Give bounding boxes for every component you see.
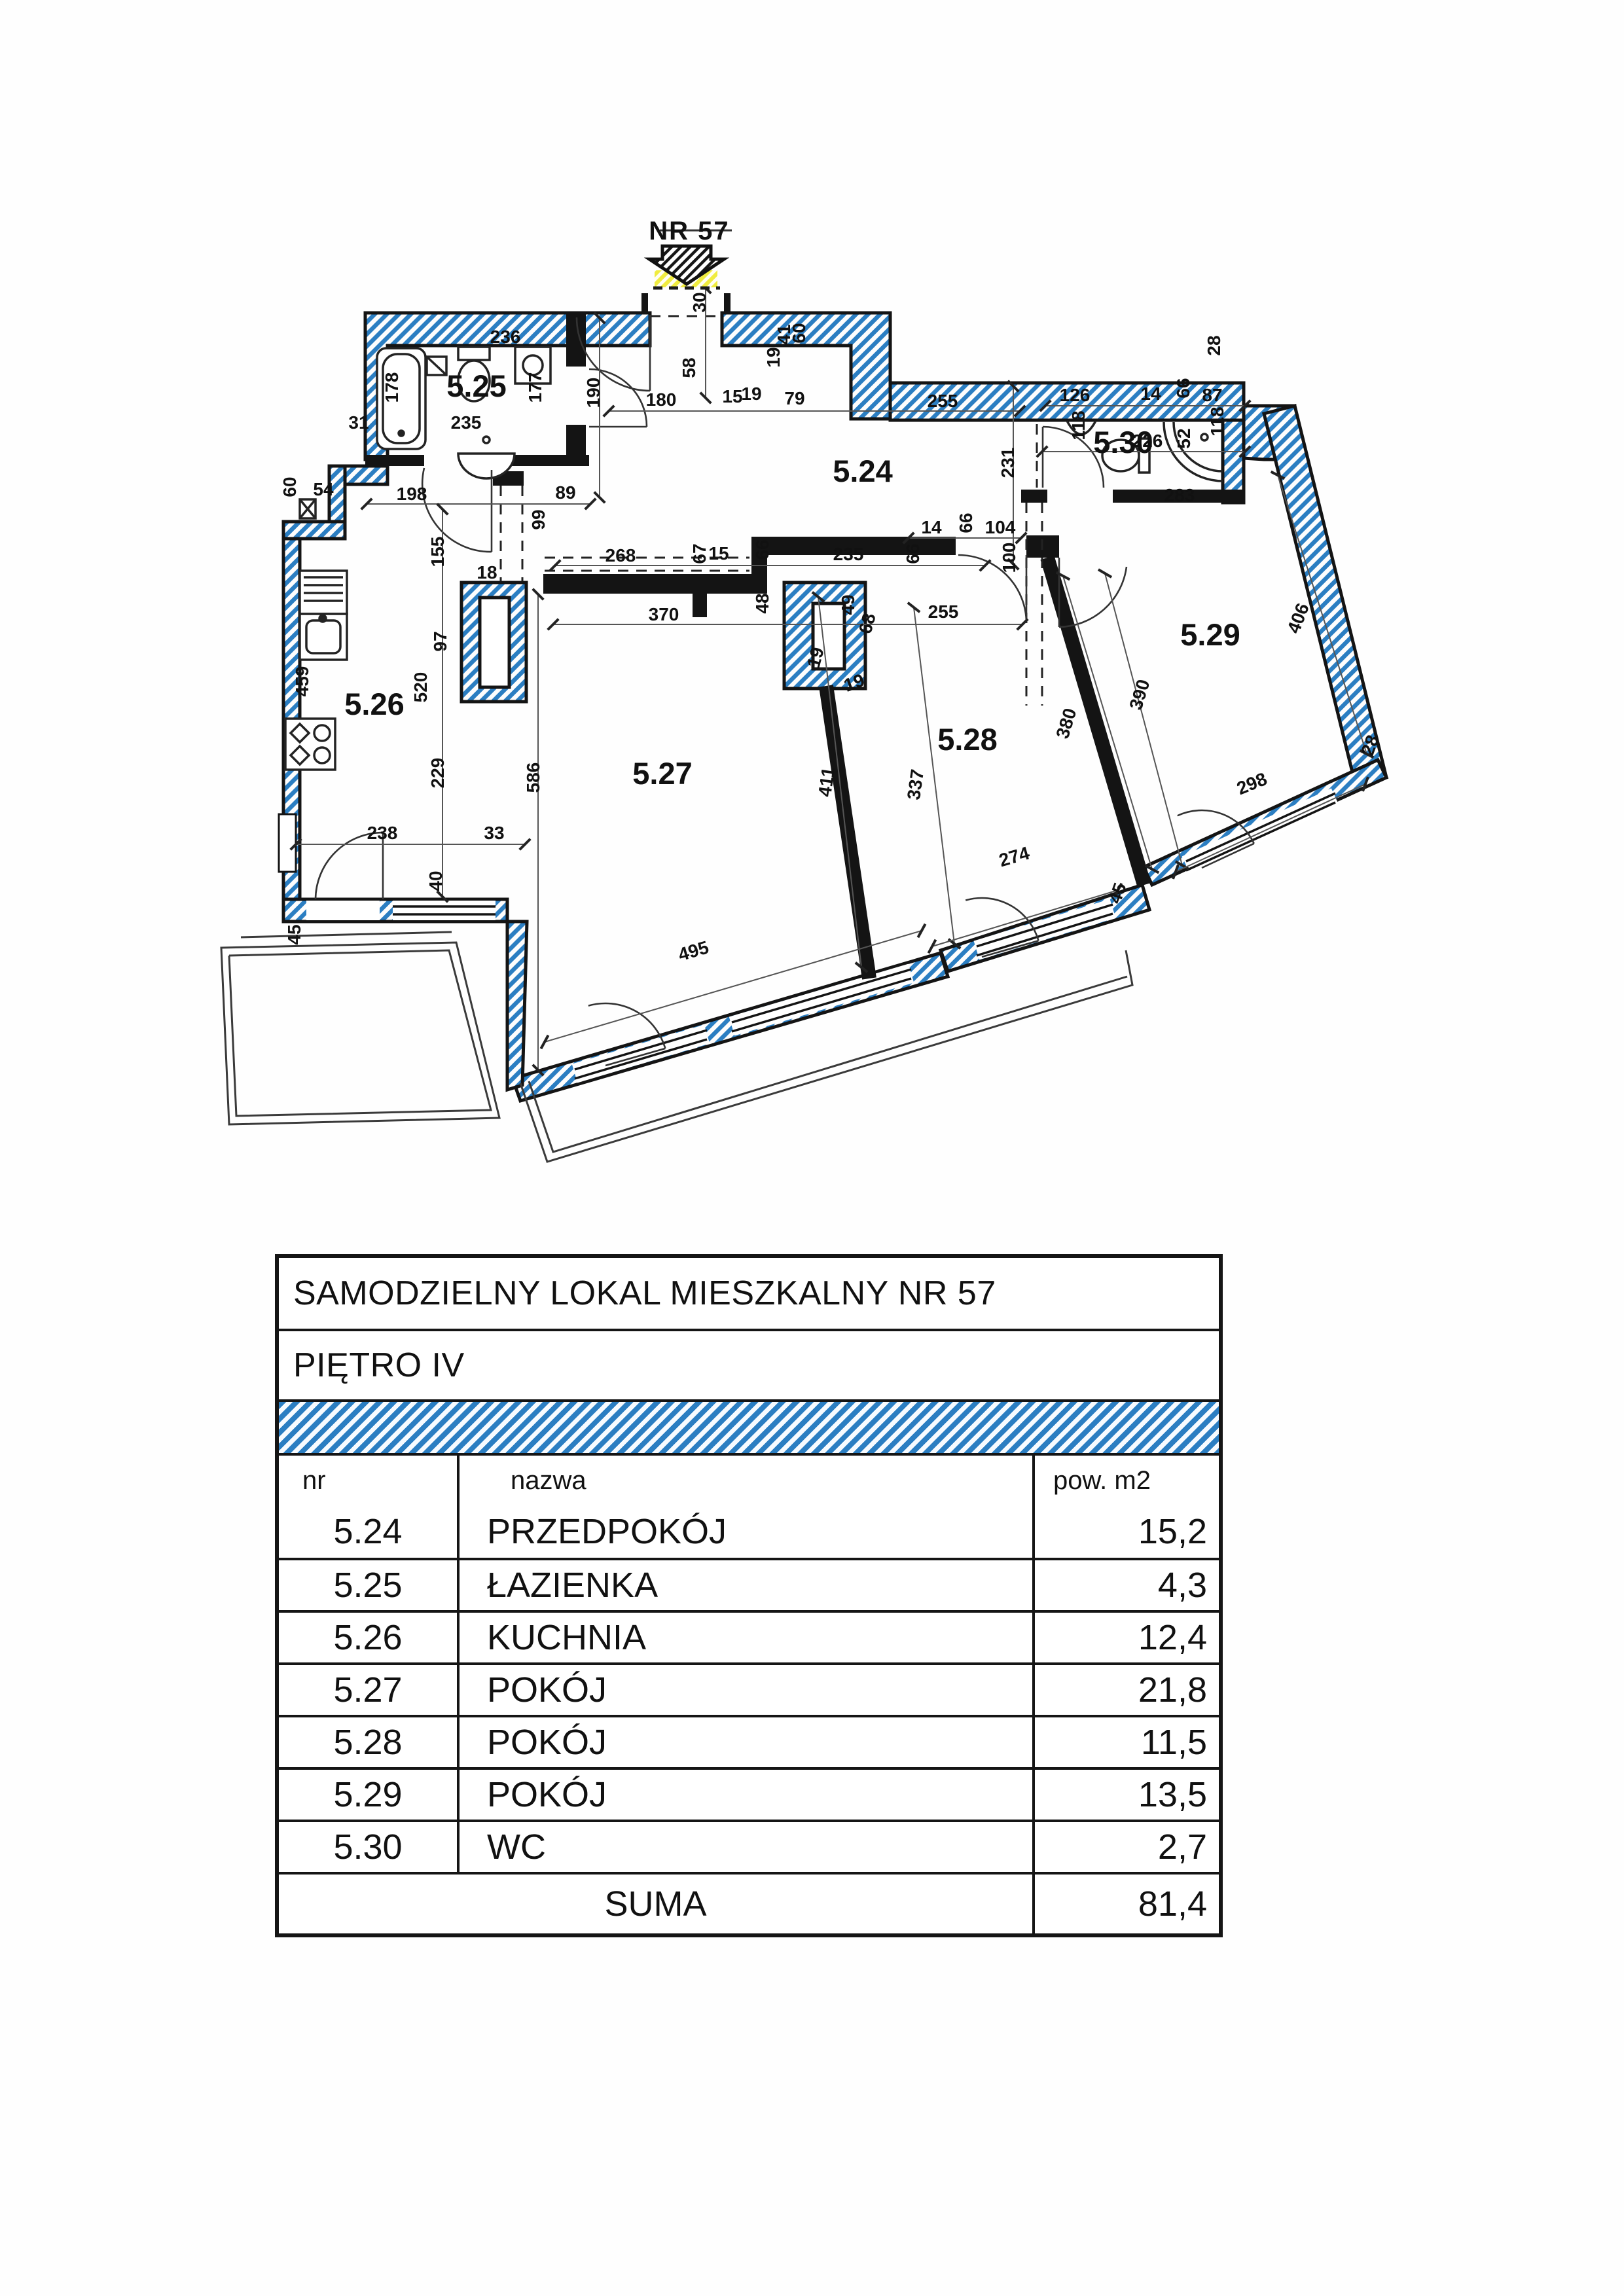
dim-label: 337 — [903, 768, 928, 801]
dim-label: 54 — [313, 479, 334, 499]
dim-label: 235 — [451, 412, 482, 433]
dim-label: 255 — [928, 391, 958, 411]
dim-label: 66 — [1173, 378, 1193, 398]
dim-label: 79 — [784, 388, 804, 408]
cell-nr: 5.29 — [279, 1774, 457, 1815]
header-pow: pow. m2 — [1032, 1456, 1219, 1505]
dashed-lines — [501, 316, 1042, 706]
dim-label: 60 — [280, 476, 300, 497]
terrace-left — [221, 942, 499, 1124]
dim-label: 411 — [814, 766, 839, 798]
entrance-label: NR 57 — [649, 217, 729, 245]
dim-label: 68 — [855, 611, 880, 636]
room-label-5.28: 5.28 — [937, 722, 997, 757]
cell-nr: 5.27 — [279, 1670, 457, 1710]
cell-nazwa: POKÓJ — [457, 1665, 1032, 1715]
table-floor: PIĘTRO IV — [279, 1329, 1219, 1399]
dim-label: 19 — [741, 384, 761, 404]
table-title: SAMODZIELNY LOKAL MIESZKALNY NR 57 — [279, 1258, 1219, 1329]
dim-label: 255 — [928, 601, 959, 622]
dim-label: 238 — [367, 823, 398, 843]
dim-label: 31 — [348, 412, 369, 433]
table-row: 5.24 PRZEDPOKÓJ 15,2 — [279, 1505, 1219, 1558]
dim-label: 19 — [763, 347, 784, 367]
dim-label: 229 — [427, 758, 448, 789]
windows — [306, 793, 1335, 1079]
dim-label: 66 — [903, 543, 923, 564]
dim-label: 15 — [722, 386, 742, 406]
header-nr: nr — [279, 1466, 457, 1496]
dim-label: 155 — [427, 537, 448, 567]
cell-pow: 11,5 — [1032, 1717, 1219, 1767]
dim-label: 190 — [583, 378, 604, 408]
dim-label: 370 — [649, 604, 679, 624]
dim-label: 89 — [555, 482, 575, 503]
table-row: 5.25 ŁAZIENKA 4,3 — [279, 1558, 1219, 1610]
dim-label: 58 — [679, 357, 699, 378]
dim-label: 283 — [1164, 485, 1195, 505]
room-label-5.29: 5.29 — [1180, 617, 1240, 652]
dim-label: 180 — [646, 389, 677, 410]
dim-label: 18 — [477, 562, 497, 583]
dim-label: 118 — [1068, 410, 1089, 440]
dim-label: 586 — [523, 762, 543, 793]
entrance-marker: NR 57 — [641, 217, 732, 312]
dim-label: 87 — [1202, 385, 1222, 405]
room-label-5.25: 5.25 — [446, 368, 506, 403]
dim-label: 459 — [292, 666, 312, 697]
dim-label: 66 — [956, 512, 976, 533]
cell-pow: 15,2 — [1032, 1505, 1219, 1558]
dim-label: 48 — [752, 593, 772, 613]
table-title-text: SAMODZIELNY LOKAL MIESZKALNY NR 57 — [293, 1274, 996, 1313]
wall-niches — [279, 598, 844, 872]
cell-nazwa: WC — [457, 1822, 1032, 1872]
cell-nr: 5.24 — [279, 1511, 457, 1552]
dim-label: 178 — [382, 372, 402, 403]
dim-label: 274 — [997, 842, 1032, 870]
dim-label: 33 — [484, 823, 504, 843]
cell-pow: 2,7 — [1032, 1822, 1219, 1872]
cell-pow: 4,3 — [1032, 1560, 1219, 1610]
header-nazwa: nazwa — [457, 1456, 1032, 1505]
dim-label: 52 — [1174, 428, 1194, 448]
table-row: 5.28 POKÓJ 11,5 — [279, 1715, 1219, 1767]
dim-label: 520 — [410, 672, 431, 703]
dim-label: 268 — [605, 545, 636, 565]
dim-label: 380 — [1052, 706, 1080, 741]
dim-label: 406 — [1283, 600, 1313, 636]
dim-label: 198 — [397, 484, 427, 504]
dim-label: 45 — [284, 924, 304, 944]
dim-label: 14 — [921, 517, 942, 537]
dim-label: 226 — [1132, 431, 1163, 451]
toilet-525 — [458, 347, 490, 360]
drawing-sheet: { "plan": { "entrance_label": "NR 57", "… — [0, 0, 1624, 2296]
cell-pow: 21,8 — [1032, 1665, 1219, 1715]
cell-nr: 5.26 — [279, 1617, 457, 1658]
floor-plan: NR 57 5.245.255.265.275.285.295.30 30581… — [0, 0, 1624, 1211]
dim-label: 236 — [490, 327, 521, 347]
table-floor-text: PIĘTRO IV — [293, 1346, 465, 1385]
hatch-band — [279, 1399, 1219, 1453]
table-header: nr nazwa pow. m2 — [279, 1453, 1219, 1505]
room-label-5.26: 5.26 — [344, 687, 404, 721]
dim-label: 126 — [1060, 385, 1091, 405]
table-rows: 5.24 PRZEDPOKÓJ 15,2 5.25 ŁAZIENKA 4,3 5… — [279, 1505, 1219, 1872]
dim-label: 30 — [689, 292, 710, 312]
area-table: SAMODZIELNY LOKAL MIESZKALNY NR 57 PIĘTR… — [275, 1254, 1223, 1937]
table-row: 5.30 WC 2,7 — [279, 1820, 1219, 1872]
dim-label: 99 — [528, 509, 549, 529]
dim-label: 231 — [998, 448, 1018, 478]
dim-label: 14 — [1140, 384, 1161, 404]
suma-row: SUMA 81,4 — [279, 1872, 1219, 1933]
dim-label: 67 — [689, 543, 710, 564]
dim-label: 495 — [676, 937, 711, 965]
dim-label: 40 — [425, 870, 446, 891]
cell-pow: 12,4 — [1032, 1613, 1219, 1662]
dim-label: 118 — [1207, 406, 1227, 436]
cell-nr: 5.28 — [279, 1722, 457, 1763]
dim-label: 28 — [1204, 335, 1224, 355]
room-label-5.24: 5.24 — [833, 454, 892, 488]
cell-nr: 5.25 — [279, 1565, 457, 1605]
dim-label: 100 — [999, 543, 1019, 573]
table-row: 5.26 KUCHNIA 12,4 — [279, 1610, 1219, 1662]
cell-nr: 5.30 — [279, 1827, 457, 1867]
table-row: 5.27 POKÓJ 21,8 — [279, 1662, 1219, 1715]
suma-label: SUMA — [279, 1884, 1032, 1924]
cell-nazwa: POKÓJ — [457, 1770, 1032, 1820]
dim-label: 66 — [752, 539, 772, 560]
dim-label: 104 — [985, 517, 1016, 537]
dim-label: 298 — [1234, 768, 1270, 798]
table-row: 5.29 POKÓJ 13,5 — [279, 1767, 1219, 1820]
dim-label: 49 — [838, 594, 858, 615]
room-label-5.27: 5.27 — [632, 756, 692, 791]
cell-nazwa: KUCHNIA — [457, 1613, 1032, 1662]
cell-nazwa: PRZEDPOKÓJ — [457, 1505, 1032, 1558]
cell-nazwa: POKÓJ — [457, 1717, 1032, 1767]
dim-label: 235 — [833, 544, 864, 564]
dim-label: 177 — [525, 372, 545, 403]
suma-value: 81,4 — [1032, 1874, 1219, 1933]
cell-nazwa: ŁAZIENKA — [457, 1560, 1032, 1610]
dim-label: 15 — [708, 543, 729, 564]
dim-label: 97 — [430, 631, 450, 651]
dim-label: 60 — [789, 323, 809, 343]
cell-pow: 13,5 — [1032, 1770, 1219, 1820]
dim-label: 390 — [1125, 677, 1153, 712]
